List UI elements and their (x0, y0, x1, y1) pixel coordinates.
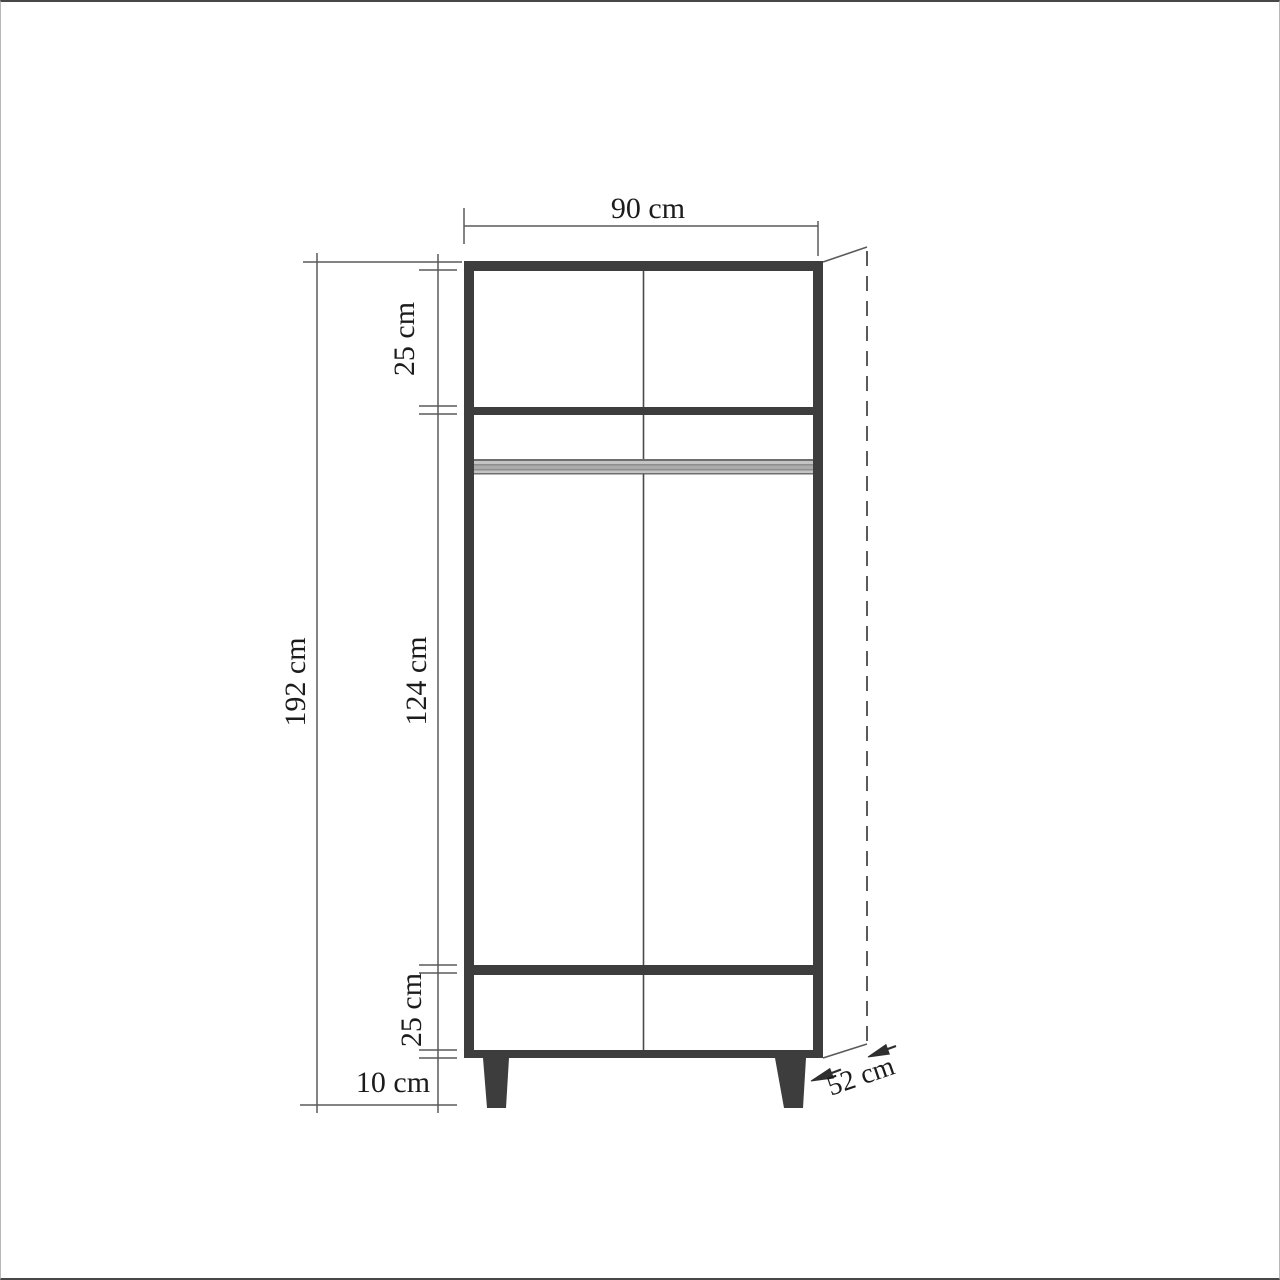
depth-bottom-diagonal (823, 1044, 867, 1058)
height-dimension-label: 192 cm (281, 637, 311, 726)
depth-top-diagonal (823, 247, 867, 262)
left-leg (483, 1058, 509, 1108)
right-leg (775, 1058, 806, 1108)
wardrobe-body (464, 261, 823, 1108)
drawer-section-dimension-label: 25 cm (397, 973, 427, 1047)
leg-height-dimension-label: 10 cm (356, 1068, 430, 1098)
width-dimension-label: 90 cm (611, 194, 685, 224)
top-section-dimension-label: 25 cm (390, 302, 420, 376)
middle-section-dimension-label: 124 cm (402, 636, 432, 725)
hanging-rail (474, 459, 813, 475)
technical-drawing-canvas: 90 cm 192 cm 25 cm 124 cm 25 cm 10 cm 52… (0, 0, 1280, 1280)
depth-projection (823, 247, 867, 1058)
